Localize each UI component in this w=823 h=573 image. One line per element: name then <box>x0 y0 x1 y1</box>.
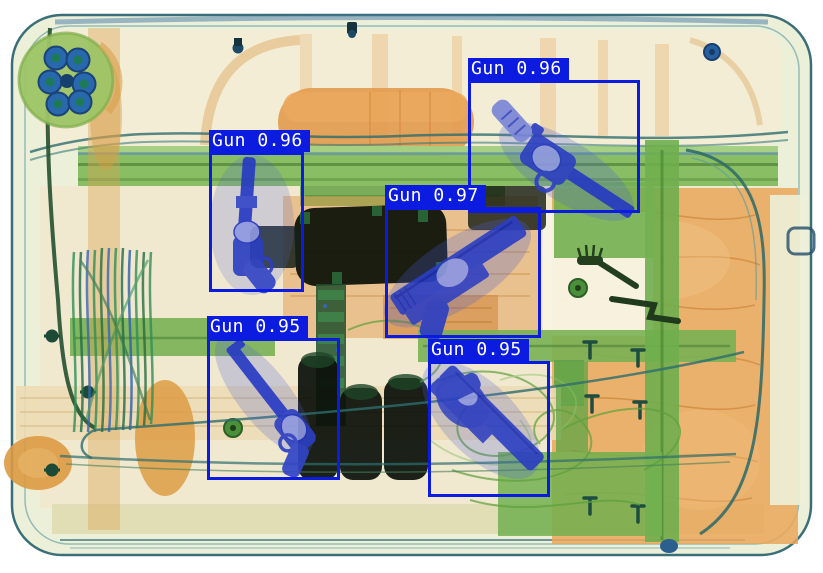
xray-scan-image: Gun 0.96 Gun 0.96 Gun 0.97 Gun 0.95 Gun … <box>0 0 823 573</box>
detection-box-3: Gun 0.97 <box>385 207 541 338</box>
detection-label-1: Gun 0.96 <box>468 58 569 80</box>
detection-box-4: Gun 0.95 <box>207 338 340 480</box>
detection-box-2: Gun 0.96 <box>209 152 304 292</box>
detection-box-1: Gun 0.96 <box>468 80 640 213</box>
detection-label-3: Gun 0.97 <box>385 185 486 207</box>
detection-label-5: Gun 0.95 <box>428 339 529 361</box>
detection-label-2: Gun 0.96 <box>209 130 310 152</box>
detection-label-4: Gun 0.95 <box>207 316 308 338</box>
detection-box-5: Gun 0.95 <box>428 361 550 497</box>
